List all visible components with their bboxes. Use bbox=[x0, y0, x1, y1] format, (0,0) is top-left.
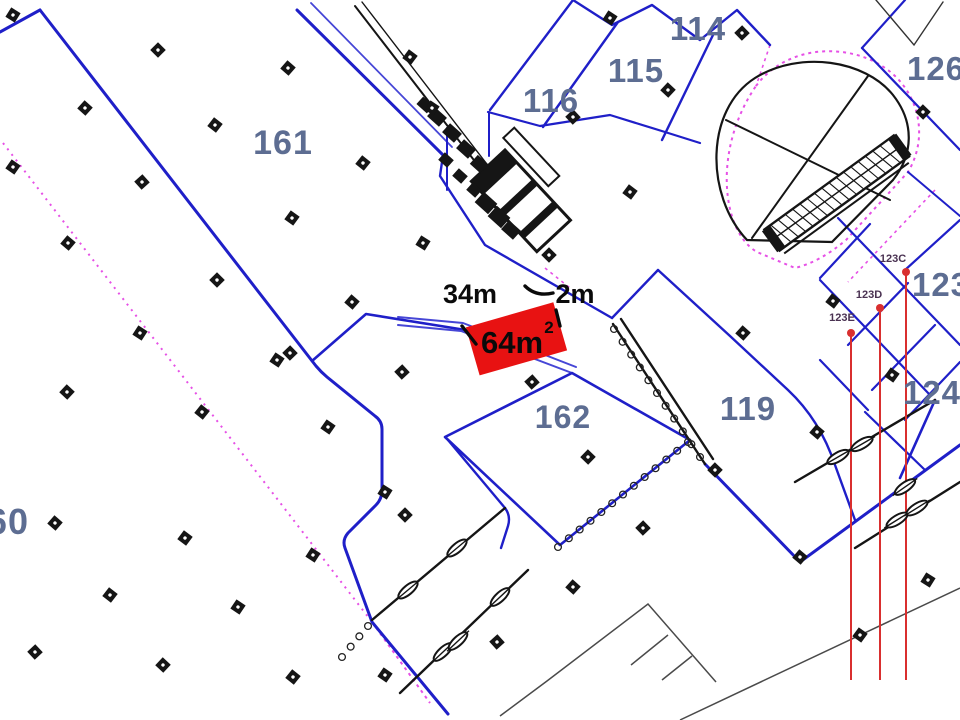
wall-corridor-nw bbox=[297, 10, 443, 155]
column-marker bbox=[305, 547, 320, 562]
column-marker bbox=[60, 235, 75, 250]
column-marker bbox=[102, 587, 117, 602]
survey-line-left bbox=[3, 143, 372, 622]
column-markers bbox=[5, 7, 935, 684]
room-label-124: 124 bbox=[903, 374, 960, 411]
column-marker bbox=[415, 235, 430, 250]
room-label-162: 162 bbox=[535, 399, 591, 435]
column-marker bbox=[284, 210, 299, 225]
room-label-161: 161 bbox=[253, 124, 313, 162]
details-black bbox=[355, 0, 960, 693]
shutter-scallops bbox=[339, 326, 704, 661]
column-marker bbox=[132, 325, 147, 340]
column-marker bbox=[285, 669, 300, 684]
wall-notch bbox=[312, 314, 478, 361]
room-label-115: 115 bbox=[608, 52, 664, 89]
gray-outlines bbox=[500, 588, 960, 720]
column-marker bbox=[541, 247, 557, 263]
dimension-area: 64m bbox=[481, 325, 543, 360]
door-lens-symbol bbox=[394, 577, 423, 603]
door-lens-symbol bbox=[444, 627, 472, 654]
column-marker bbox=[150, 42, 166, 58]
stall-label-123d: 123D bbox=[856, 289, 882, 301]
column-marker bbox=[282, 345, 298, 361]
door-lens-symbol bbox=[823, 446, 853, 469]
column-marker bbox=[734, 25, 750, 41]
column-marker bbox=[59, 384, 75, 400]
column-marker bbox=[47, 515, 63, 531]
column-marker bbox=[355, 155, 370, 170]
stall-label-123c: 123C bbox=[880, 253, 906, 265]
column-marker bbox=[5, 159, 20, 174]
survey-line-link bbox=[756, 45, 770, 86]
floor-plan-canvas: 161 116 115 114 126 123 124 119 162 60 3… bbox=[0, 0, 960, 720]
column-marker bbox=[377, 667, 392, 682]
column-marker bbox=[209, 272, 225, 288]
column-marker bbox=[524, 374, 540, 390]
column-marker bbox=[825, 293, 840, 308]
column-marker bbox=[344, 294, 360, 310]
column-marker bbox=[792, 549, 807, 564]
column-marker bbox=[565, 579, 581, 595]
column-marker bbox=[155, 657, 171, 673]
door-lens-symbol bbox=[486, 583, 514, 610]
column-marker bbox=[622, 184, 637, 199]
stall-label-123e: 123E bbox=[829, 312, 855, 324]
gray-line-bottom-right bbox=[680, 588, 960, 720]
dimension-area-exponent: 2 bbox=[544, 318, 553, 337]
column-marker bbox=[177, 530, 192, 545]
column-marker bbox=[134, 174, 150, 190]
leader-2m bbox=[525, 286, 553, 294]
column-marker bbox=[394, 364, 410, 380]
column-marker bbox=[920, 572, 935, 587]
column-marker bbox=[852, 627, 867, 642]
column-marker bbox=[580, 449, 596, 465]
dimension-34m: 34m bbox=[443, 279, 497, 309]
column-marker bbox=[269, 352, 284, 367]
column-marker bbox=[635, 520, 651, 536]
staircase-block bbox=[465, 128, 587, 252]
column-marker bbox=[320, 419, 335, 434]
room-label-123: 123 bbox=[912, 266, 960, 303]
room-label-60: 60 bbox=[0, 501, 29, 542]
column-marker bbox=[280, 60, 296, 76]
wall-doors-a bbox=[372, 508, 505, 620]
room-label-119: 119 bbox=[720, 390, 776, 427]
column-marker bbox=[707, 462, 723, 478]
column-marker bbox=[230, 599, 245, 614]
column-marker bbox=[27, 644, 43, 660]
room-label-114: 114 bbox=[670, 10, 726, 47]
column-marker bbox=[402, 49, 417, 64]
column-marker bbox=[207, 117, 222, 132]
room-label-116: 116 bbox=[523, 82, 579, 119]
column-marker bbox=[77, 100, 93, 116]
column-marker bbox=[735, 325, 751, 341]
column-marker bbox=[194, 404, 209, 419]
floor-plan-screenshot: 161 116 115 114 126 123 124 119 162 60 3… bbox=[0, 0, 960, 720]
column-marker bbox=[489, 634, 505, 650]
column-marker bbox=[884, 367, 899, 382]
door-lens-symbol bbox=[443, 535, 472, 561]
escalator-bar bbox=[762, 134, 915, 257]
column-marker bbox=[397, 507, 413, 523]
room-label-126: 126 bbox=[907, 50, 960, 87]
dimension-2m: 2m bbox=[555, 279, 594, 309]
